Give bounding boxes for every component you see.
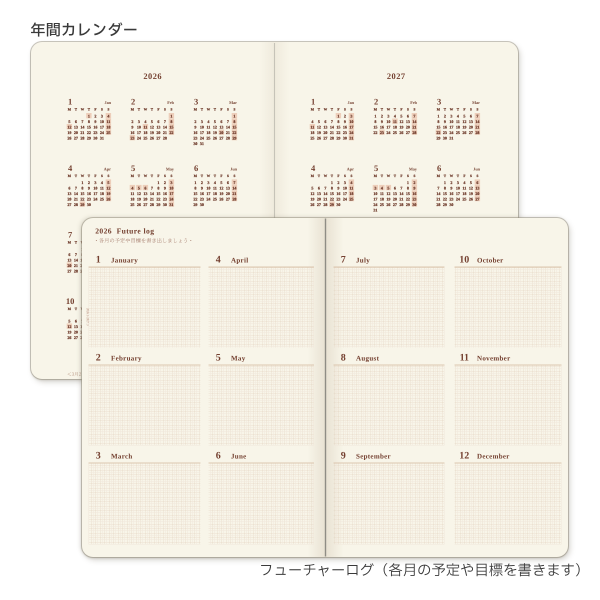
svg-text:17: 17 [93, 191, 97, 196]
svg-text:March: March [111, 453, 133, 461]
svg-text:3: 3 [138, 119, 140, 124]
svg-text:9: 9 [201, 186, 203, 191]
svg-text:16: 16 [343, 125, 347, 130]
svg-text:10: 10 [343, 186, 347, 191]
svg-text:24: 24 [456, 197, 460, 202]
svg-text:January: January [111, 257, 138, 265]
svg-text:13: 13 [393, 191, 397, 196]
svg-text:26: 26 [106, 197, 110, 202]
svg-text:21: 21 [232, 191, 236, 196]
svg-text:5: 5 [216, 353, 221, 364]
svg-text:Feb: Feb [410, 100, 417, 105]
svg-text:30: 30 [163, 202, 167, 207]
svg-text:October: October [477, 257, 504, 265]
svg-text:December: December [477, 453, 510, 461]
svg-text:28: 28 [323, 202, 327, 207]
svg-text:27: 27 [406, 130, 410, 135]
svg-text:13: 13 [323, 125, 327, 130]
svg-text:2: 2 [131, 119, 133, 124]
svg-text:27: 27 [393, 202, 397, 207]
svg-text:21: 21 [74, 197, 78, 202]
svg-text:MTWTFSS: MTWTFSS [437, 107, 479, 111]
svg-text:27: 27 [323, 136, 327, 141]
svg-text:Jan: Jan [104, 100, 111, 105]
svg-text:27: 27 [156, 136, 160, 141]
svg-text:8: 8 [157, 186, 159, 191]
svg-text:8: 8 [374, 119, 376, 124]
svg-text:5: 5 [138, 186, 140, 191]
svg-text:1: 1 [331, 180, 333, 185]
svg-text:2: 2 [94, 114, 96, 119]
svg-text:Mar: Mar [229, 100, 237, 105]
svg-text:3: 3 [170, 180, 172, 185]
svg-text:30: 30 [193, 141, 197, 146]
svg-text:4: 4 [68, 163, 73, 173]
svg-text:27: 27 [74, 335, 78, 340]
svg-text:22: 22 [336, 130, 340, 135]
svg-text:11: 11 [213, 186, 217, 191]
svg-text:12: 12 [137, 191, 141, 196]
svg-text:14: 14 [475, 119, 479, 124]
svg-text:10: 10 [137, 125, 141, 130]
svg-text:7: 7 [75, 252, 77, 257]
svg-text:27: 27 [67, 269, 71, 274]
svg-text:2: 2 [96, 353, 101, 364]
svg-text:17: 17 [449, 125, 453, 130]
svg-text:24: 24 [137, 136, 141, 141]
svg-text:15: 15 [156, 191, 160, 196]
svg-text:27: 27 [219, 136, 223, 141]
svg-text:25: 25 [130, 202, 134, 207]
svg-text:9: 9 [341, 451, 346, 462]
svg-text:4: 4 [101, 180, 103, 185]
svg-text:14: 14 [232, 186, 236, 191]
svg-text:30: 30 [443, 136, 447, 141]
svg-text:6: 6 [220, 119, 222, 124]
svg-text:8: 8 [194, 186, 196, 191]
svg-text:12: 12 [219, 186, 223, 191]
svg-text:30: 30 [412, 202, 416, 207]
svg-text:6: 6 [157, 119, 159, 124]
svg-text:8: 8 [437, 119, 439, 124]
svg-text:May: May [166, 166, 175, 171]
svg-text:13: 13 [74, 324, 78, 329]
svg-text:2: 2 [381, 114, 383, 119]
svg-text:23: 23 [380, 130, 384, 135]
svg-text:17: 17 [343, 191, 347, 196]
svg-text:MTWTFSS: MTWTFSS [311, 174, 353, 178]
svg-text:28: 28 [232, 197, 236, 202]
svg-text:22: 22 [87, 130, 91, 135]
svg-text:9: 9 [131, 125, 133, 130]
svg-text:8: 8 [233, 119, 235, 124]
svg-text:5: 5 [311, 186, 313, 191]
svg-text:8: 8 [407, 186, 409, 191]
svg-text:19: 19 [67, 130, 71, 135]
svg-text:14: 14 [80, 125, 84, 130]
svg-text:Feb: Feb [167, 100, 174, 105]
svg-text:14: 14 [74, 258, 78, 263]
svg-text:16: 16 [130, 130, 134, 135]
svg-text:1: 1 [374, 114, 376, 119]
svg-text:13: 13 [156, 125, 160, 130]
svg-text:11: 11 [456, 119, 460, 124]
svg-text:MTWTFSS: MTWTFSS [68, 107, 110, 111]
svg-text:2: 2 [194, 119, 196, 124]
svg-text:Jun: Jun [230, 166, 237, 171]
svg-text:29: 29 [436, 136, 440, 141]
svg-text:4: 4 [350, 180, 352, 185]
svg-text:9: 9 [337, 186, 339, 191]
svg-text:1: 1 [444, 180, 446, 185]
svg-text:Apr: Apr [347, 166, 354, 171]
svg-text:6: 6 [144, 186, 146, 191]
svg-text:29: 29 [406, 202, 410, 207]
svg-text:Jun: Jun [473, 166, 480, 171]
svg-text:23: 23 [163, 197, 167, 202]
svg-text:14: 14 [399, 191, 403, 196]
svg-text:13: 13 [67, 191, 71, 196]
svg-text:5: 5 [318, 119, 320, 124]
svg-text:8: 8 [341, 353, 346, 364]
svg-text:27: 27 [226, 197, 230, 202]
svg-text:21: 21 [163, 130, 167, 135]
svg-text:24: 24 [206, 197, 210, 202]
svg-text:14: 14 [323, 191, 327, 196]
svg-text:24: 24 [93, 197, 97, 202]
svg-text:23: 23 [443, 130, 447, 135]
svg-text:21: 21 [412, 125, 416, 130]
svg-text:25: 25 [213, 197, 217, 202]
svg-text:11: 11 [130, 191, 134, 196]
svg-text:17: 17 [206, 191, 210, 196]
svg-text:21: 21 [150, 197, 154, 202]
svg-text:16: 16 [193, 130, 197, 135]
svg-text:31: 31 [449, 136, 453, 141]
svg-text:23: 23 [193, 136, 197, 141]
svg-text:19: 19 [469, 191, 473, 196]
svg-text:10: 10 [373, 191, 377, 196]
svg-text:6: 6 [227, 180, 229, 185]
svg-text:5: 5 [220, 180, 222, 185]
svg-text:10: 10 [200, 125, 204, 130]
svg-text:12: 12 [469, 186, 473, 191]
svg-text:28: 28 [436, 202, 440, 207]
svg-text:10: 10 [449, 119, 453, 124]
svg-text:31: 31 [349, 136, 353, 141]
svg-text:2027: 2027 [387, 72, 406, 81]
svg-text:19: 19 [386, 197, 390, 202]
svg-text:8: 8 [331, 186, 333, 191]
svg-text:20: 20 [226, 191, 230, 196]
svg-text:24: 24 [386, 130, 390, 135]
svg-text:14: 14 [330, 125, 334, 130]
svg-text:3: 3 [194, 97, 198, 107]
svg-text:15: 15 [87, 125, 91, 130]
svg-text:29: 29 [232, 136, 236, 141]
svg-text:1: 1 [96, 255, 101, 266]
svg-text:8: 8 [444, 186, 446, 191]
svg-text:4: 4 [311, 163, 316, 173]
svg-text:4: 4 [107, 114, 109, 119]
svg-text:17: 17 [386, 125, 390, 130]
svg-text:22: 22 [373, 130, 377, 135]
svg-text:13: 13 [226, 186, 230, 191]
svg-text:27: 27 [469, 130, 473, 135]
svg-text:15: 15 [169, 125, 173, 130]
svg-text:23: 23 [343, 130, 347, 135]
svg-text:17: 17 [373, 197, 377, 202]
svg-text:6: 6 [394, 186, 396, 191]
svg-text:30: 30 [200, 202, 204, 207]
svg-text:9: 9 [381, 119, 383, 124]
svg-text:3: 3 [207, 180, 209, 185]
svg-text:2: 2 [413, 180, 415, 185]
svg-text:1: 1 [311, 97, 315, 107]
svg-text:15: 15 [232, 125, 236, 130]
svg-text:23: 23 [336, 197, 340, 202]
svg-text:6: 6 [75, 319, 77, 324]
svg-text:6: 6 [437, 163, 441, 173]
svg-text:3: 3 [457, 180, 459, 185]
svg-text:26: 26 [219, 197, 223, 202]
svg-text:11: 11 [393, 119, 397, 124]
svg-text:31: 31 [200, 141, 204, 146]
svg-text:22: 22 [169, 130, 173, 135]
svg-text:24: 24 [100, 130, 104, 135]
svg-text:12: 12 [399, 119, 403, 124]
svg-text:17: 17 [137, 130, 141, 135]
svg-text:7: 7 [81, 119, 83, 124]
svg-text:19: 19 [310, 197, 314, 202]
svg-text:11: 11 [380, 191, 384, 196]
svg-text:28: 28 [74, 202, 78, 207]
svg-text:5: 5 [131, 163, 135, 173]
svg-text:15: 15 [193, 191, 197, 196]
svg-text:7: 7 [227, 119, 229, 124]
svg-text:21: 21 [80, 130, 84, 135]
svg-text:22: 22 [443, 197, 447, 202]
svg-text:5: 5 [374, 163, 378, 173]
svg-text:May: May [231, 355, 246, 363]
svg-text:1: 1 [337, 114, 339, 119]
svg-text:24: 24 [343, 197, 347, 202]
svg-text:19: 19 [399, 125, 403, 130]
svg-text:12: 12 [213, 125, 217, 130]
svg-text:23: 23 [412, 197, 416, 202]
svg-text:17: 17 [169, 191, 173, 196]
svg-text:25: 25 [106, 130, 110, 135]
svg-text:1: 1 [68, 97, 72, 107]
svg-text:19: 19 [106, 191, 110, 196]
svg-text:16: 16 [443, 125, 447, 130]
svg-text:13: 13 [469, 119, 473, 124]
svg-text:17: 17 [349, 125, 353, 130]
svg-text:15: 15 [330, 191, 334, 196]
svg-text:18: 18 [213, 191, 217, 196]
svg-text:May: May [409, 166, 418, 171]
svg-text:2: 2 [88, 180, 90, 185]
svg-text:February: February [111, 355, 142, 363]
svg-text:10: 10 [456, 186, 460, 191]
svg-text:12: 12 [462, 119, 466, 124]
svg-text:10: 10 [100, 119, 104, 124]
svg-text:24: 24 [373, 202, 377, 207]
svg-text:28: 28 [475, 130, 479, 135]
svg-text:7: 7 [151, 186, 153, 191]
svg-text:14: 14 [436, 191, 440, 196]
svg-text:18: 18 [106, 125, 110, 130]
svg-text:June: June [231, 453, 247, 461]
svg-text:29: 29 [87, 136, 91, 141]
svg-text:18: 18 [130, 197, 134, 202]
svg-text:21: 21 [475, 125, 479, 130]
svg-text:5: 5 [151, 119, 153, 124]
svg-text:6: 6 [407, 114, 409, 119]
svg-text:29: 29 [336, 136, 340, 141]
svg-text:28: 28 [150, 202, 154, 207]
svg-text:28: 28 [412, 130, 416, 135]
svg-text:10: 10 [386, 119, 390, 124]
svg-text:18: 18 [462, 191, 466, 196]
svg-text:11: 11 [106, 119, 110, 124]
svg-text:28: 28 [80, 136, 84, 141]
svg-text:2026: 2026 [143, 72, 162, 81]
svg-text:23: 23 [200, 197, 204, 202]
svg-text:5: 5 [463, 114, 465, 119]
svg-text:12: 12 [106, 186, 110, 191]
svg-text:8: 8 [337, 119, 339, 124]
svg-text:18: 18 [310, 130, 314, 135]
svg-text:6: 6 [75, 119, 77, 124]
svg-text:7: 7 [324, 186, 326, 191]
svg-text:23: 23 [93, 130, 97, 135]
svg-text:8: 8 [170, 119, 172, 124]
svg-text:November: November [477, 355, 511, 363]
svg-text:26: 26 [150, 136, 154, 141]
svg-text:16: 16 [380, 125, 384, 130]
svg-text:12: 12 [317, 125, 321, 130]
svg-text:30: 30 [343, 136, 347, 141]
svg-text:4: 4 [144, 119, 146, 124]
svg-text:20: 20 [74, 130, 78, 135]
svg-text:18: 18 [393, 125, 397, 130]
svg-text:5: 5 [68, 319, 70, 324]
svg-text:26: 26 [399, 130, 403, 135]
svg-text:July: July [356, 257, 370, 265]
svg-text:21: 21 [226, 130, 230, 135]
svg-text:Mar: Mar [472, 100, 480, 105]
svg-text:4: 4 [311, 119, 313, 124]
svg-text:7: 7 [331, 119, 333, 124]
svg-text:3: 3 [94, 180, 96, 185]
svg-text:11: 11 [310, 125, 314, 130]
svg-text:26: 26 [462, 130, 466, 135]
svg-text:5: 5 [107, 180, 109, 185]
svg-text:16: 16 [87, 191, 91, 196]
svg-text:28: 28 [74, 269, 78, 274]
svg-text:30: 30 [87, 202, 91, 207]
svg-text:6: 6 [470, 114, 472, 119]
svg-text:15: 15 [443, 191, 447, 196]
svg-text:13: 13 [317, 191, 321, 196]
svg-text:24: 24 [349, 130, 353, 135]
svg-text:6: 6 [324, 119, 326, 124]
svg-text:2: 2 [131, 97, 135, 107]
svg-text:15: 15 [406, 191, 410, 196]
svg-text:MTWTFSS: MTWTFSS [68, 174, 110, 178]
svg-text:25: 25 [143, 136, 147, 141]
svg-text:6: 6 [194, 163, 198, 173]
svg-text:20: 20 [475, 191, 479, 196]
svg-text:13: 13 [74, 125, 78, 130]
svg-text:28: 28 [226, 136, 230, 141]
svg-text:18: 18 [143, 130, 147, 135]
svg-text:26: 26 [67, 136, 71, 141]
svg-text:31: 31 [100, 136, 104, 141]
svg-text:MTWTFSS: MTWTFSS [311, 107, 353, 111]
svg-text:8: 8 [81, 186, 83, 191]
svg-text:MTWTFSS: MTWTFSS [374, 174, 416, 178]
svg-text:2: 2 [444, 114, 446, 119]
svg-text:19: 19 [219, 191, 223, 196]
svg-text:2: 2 [164, 180, 166, 185]
svg-text:20: 20 [393, 197, 397, 202]
svg-text:17: 17 [456, 191, 460, 196]
svg-text:11: 11 [100, 186, 104, 191]
svg-text:25: 25 [456, 130, 460, 135]
svg-text:24: 24 [200, 136, 204, 141]
svg-text:30: 30 [93, 136, 97, 141]
svg-text:29: 29 [443, 202, 447, 207]
svg-text:2: 2 [450, 180, 452, 185]
svg-text:22: 22 [330, 197, 334, 202]
svg-text:15: 15 [436, 125, 440, 130]
svg-text:14: 14 [412, 119, 416, 124]
svg-text:1: 1 [88, 114, 90, 119]
svg-text:4: 4 [131, 186, 133, 191]
svg-text:7: 7 [75, 186, 77, 191]
svg-text:25: 25 [349, 197, 353, 202]
svg-text:16: 16 [336, 191, 340, 196]
svg-text:13: 13 [67, 258, 71, 263]
svg-text:4: 4 [216, 255, 221, 266]
svg-text:5: 5 [68, 119, 70, 124]
svg-text:21: 21 [323, 197, 327, 202]
svg-text:19: 19 [213, 130, 217, 135]
svg-text:22: 22 [436, 130, 440, 135]
svg-text:MTWTFSS: MTWTFSS [131, 174, 173, 178]
svg-text:MTWTFSS: MTWTFSS [374, 107, 416, 111]
svg-text:7: 7 [437, 186, 439, 191]
svg-text:7: 7 [413, 114, 415, 119]
svg-text:27: 27 [74, 136, 78, 141]
svg-text:24: 24 [169, 197, 173, 202]
svg-text:18: 18 [206, 130, 210, 135]
svg-text:17: 17 [100, 125, 104, 130]
svg-text:3: 3 [437, 97, 441, 107]
svg-text:7: 7 [400, 186, 402, 191]
svg-text:18: 18 [100, 191, 104, 196]
svg-text:30: 30 [449, 202, 453, 207]
svg-text:26: 26 [310, 202, 314, 207]
svg-text:20: 20 [406, 125, 410, 130]
svg-text:11: 11 [206, 125, 210, 130]
svg-text:16: 16 [449, 191, 453, 196]
svg-text:18: 18 [349, 191, 353, 196]
svg-text:25: 25 [393, 130, 397, 135]
svg-text:12: 12 [150, 125, 154, 130]
